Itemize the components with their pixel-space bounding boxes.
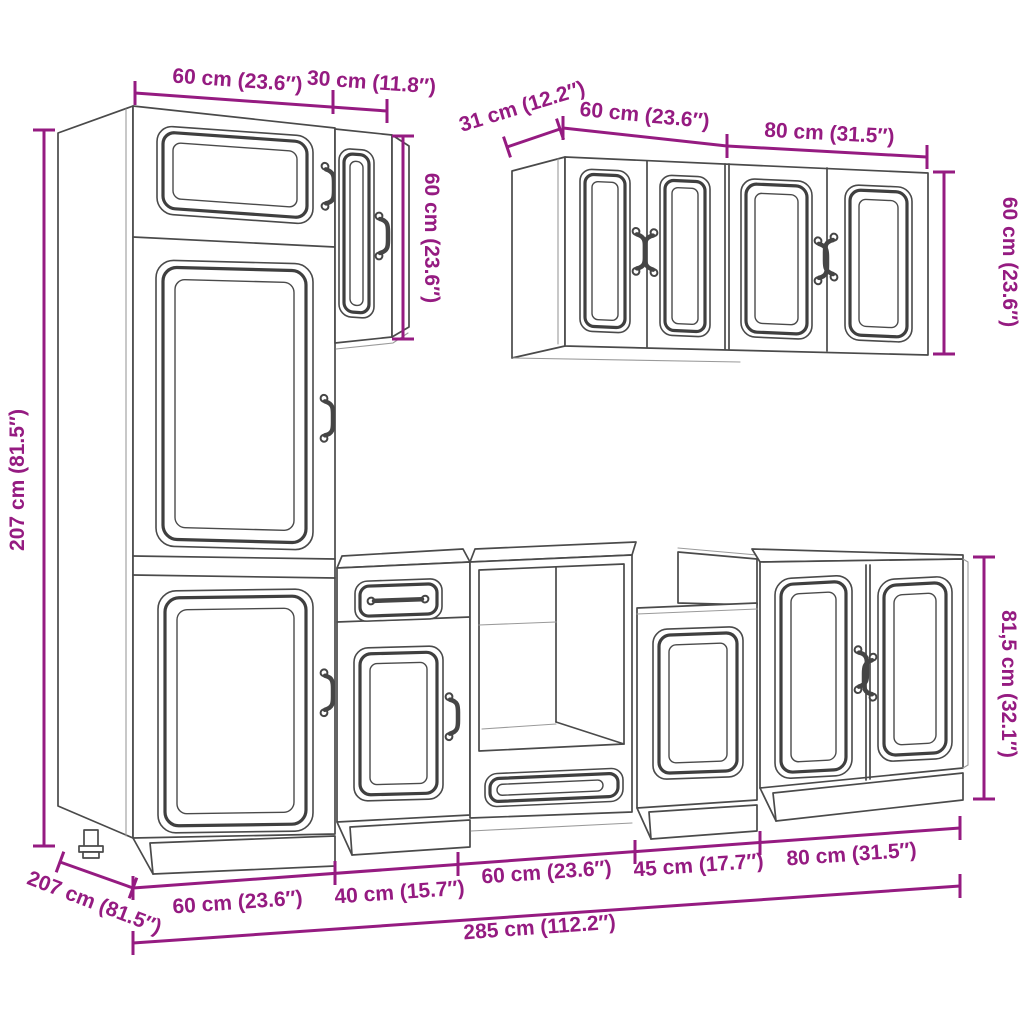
wall-cabinet-group: [512, 157, 928, 362]
dim-label-base-1: 60 cm (23.6″): [172, 886, 304, 918]
dim-label-base-5: 80 cm (31.5″): [786, 838, 918, 870]
cabinet-foot: [79, 830, 103, 858]
dim-label-base-4: 45 cm (17.7″): [633, 849, 765, 881]
dim-label-wall-height: 60 cm (23.6″): [998, 197, 1021, 327]
dim-base-height: 81,5 cm (32.1″): [973, 557, 1020, 799]
oven-housing-60: [470, 542, 636, 831]
dim-label-upper-width: 30 cm (11.8″): [306, 67, 436, 99]
dim-total-width: 285 cm (112.2″): [133, 874, 960, 955]
dim-wall-height: 60 cm (23.6″): [933, 172, 1021, 354]
tall-cabinet-middle-door: [156, 260, 333, 551]
upper-cabinet-door: [339, 148, 374, 318]
drawer-front: [355, 578, 442, 621]
base-80-door-right: [864, 576, 952, 763]
tall-cabinet: [58, 106, 335, 874]
cabinet-dimension-diagram: 60 cm (23.6″) 30 cm (11.8″) 60 cm (23.6″…: [0, 0, 1024, 1024]
dim-label-tall-width: 60 cm (23.6″): [172, 64, 304, 96]
dim-label-base-2: 40 cm (15.7″): [334, 876, 466, 908]
tall-cabinet-bottom-door: [158, 589, 333, 833]
base-cabinet-40: [337, 549, 470, 855]
dim-floor-depth: 207 cm (81.5″): [24, 852, 165, 939]
dim-label-base-height: 81,5 cm (32.1″): [997, 610, 1020, 758]
diagram-canvas: 60 cm (23.6″) 30 cm (11.8″) 60 cm (23.6″…: [0, 0, 1024, 1024]
base-cabinet-45: [637, 548, 757, 839]
dim-wall-top: 31 cm (12.2″) 60 cm (23.6″) 80 cm (31.5″…: [456, 77, 927, 169]
base-cabinet-80: [752, 549, 968, 821]
dim-label-floor-depth: 207 cm (81.5″): [24, 867, 165, 939]
upper-cabinet-30: [335, 129, 409, 349]
dim-label-total-width: 285 cm (112.2″): [463, 911, 617, 945]
base-40-door: [354, 645, 458, 801]
dim-label-wall-60: 60 cm (23.6″): [579, 98, 711, 133]
base-45-door: [653, 626, 743, 779]
dim-tall-height: 207 cm (81.5″): [6, 130, 55, 846]
tall-cabinet-plinth: [133, 836, 335, 874]
oven-drawer-front: [485, 768, 623, 807]
dim-label-tall-height: 207 cm (81.5″): [6, 409, 29, 551]
dim-label-upper-height: 60 cm (23.6″): [420, 173, 443, 303]
dim-label-wall-80: 80 cm (31.5″): [764, 119, 895, 149]
tall-cabinet-top-door: [157, 126, 334, 226]
